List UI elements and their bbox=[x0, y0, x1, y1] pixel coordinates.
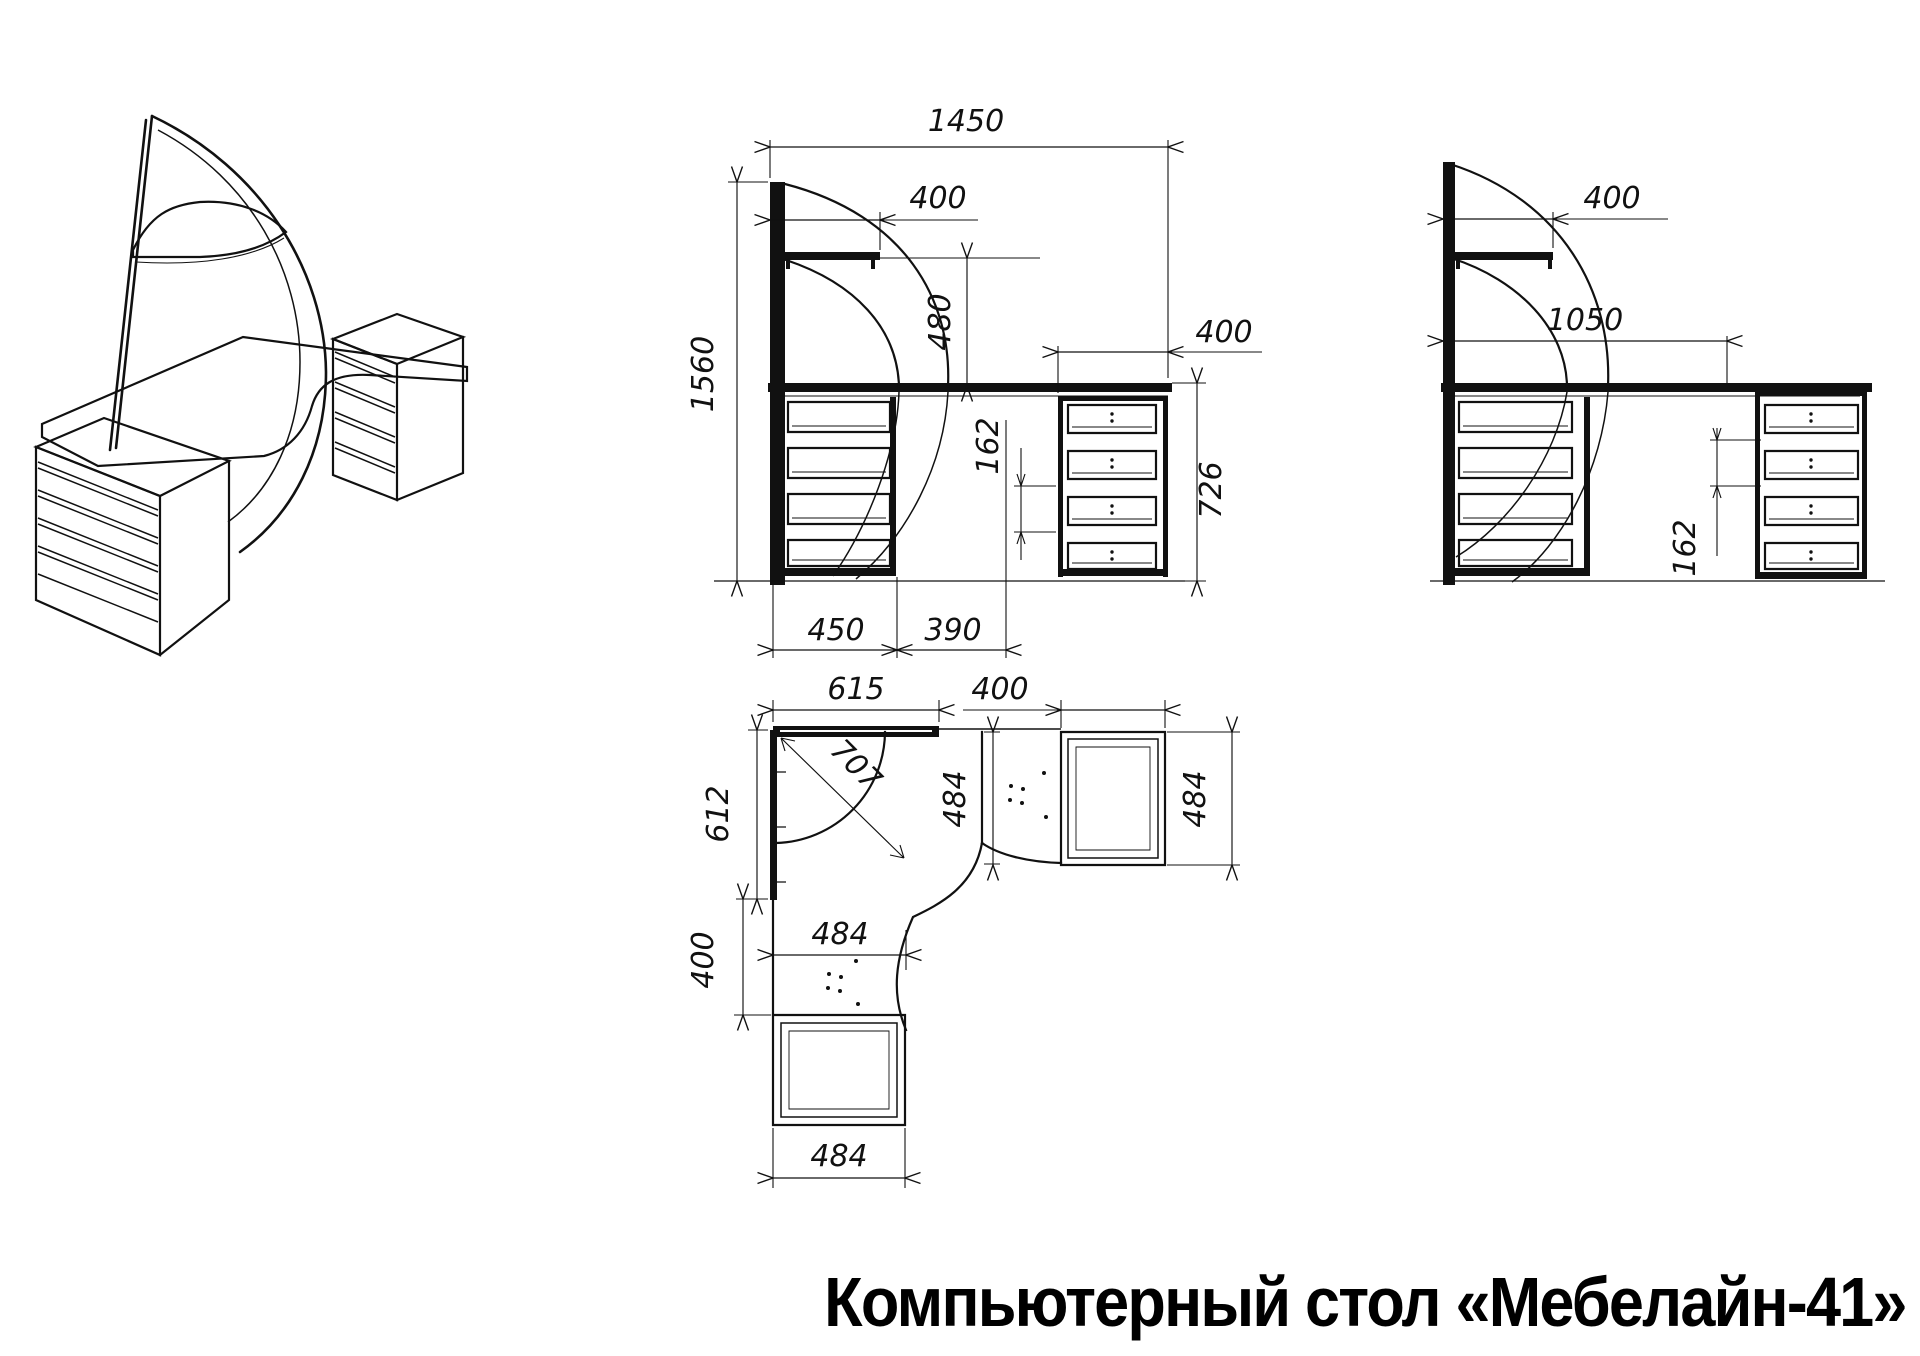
right-pedestal-drawer-bands bbox=[335, 352, 395, 473]
drawer-handle-dot bbox=[1110, 412, 1113, 415]
plan-hole-dot bbox=[826, 986, 830, 990]
plan-wing-bottom-edge bbox=[982, 843, 1061, 863]
plan-hole-dot bbox=[854, 959, 858, 963]
plan-hole-dot bbox=[856, 1002, 860, 1006]
drawer-handle-dot bbox=[1110, 458, 1113, 461]
plan-right-unit-outer bbox=[1061, 732, 1165, 865]
left-pedestal-drawer-bands bbox=[38, 462, 158, 622]
side-solid-panels bbox=[1441, 162, 1872, 585]
drawer-handle-dot bbox=[1110, 511, 1113, 514]
dim-text-484-right: 484 bbox=[1178, 770, 1213, 827]
blueprint-page: 1450 400 480 1560 400 162 726 450 390 40… bbox=[0, 0, 1920, 1356]
plan-view: 615 400 612 707 484 484 400 484 484 bbox=[686, 672, 1240, 1188]
dim-text-450: 450 bbox=[807, 613, 864, 648]
front-view: 1450 400 480 1560 400 162 726 450 390 bbox=[686, 104, 1262, 658]
drawer-handle-dot bbox=[1809, 419, 1812, 422]
desktop-outline bbox=[42, 337, 467, 466]
plan-right-unit-inner bbox=[1068, 739, 1158, 858]
dim-text-480: 480 bbox=[923, 293, 958, 350]
isometric-view bbox=[36, 116, 467, 655]
plan-hole-dot bbox=[839, 975, 843, 979]
drawer-handle-dot bbox=[1809, 557, 1812, 560]
plan-hole-dot bbox=[1020, 801, 1024, 805]
drawer-handle-dot bbox=[1110, 504, 1113, 507]
dim-text-612: 612 bbox=[701, 785, 736, 842]
drawer-handle-dot bbox=[1809, 412, 1812, 415]
drawer-handle-dot bbox=[1809, 550, 1812, 553]
plan-bottom-unit-outer bbox=[773, 1015, 905, 1125]
plan-right-unit-core bbox=[1076, 747, 1150, 850]
drawer-handle-dot bbox=[1809, 504, 1812, 507]
dim-text-484-left: 484 bbox=[938, 770, 973, 827]
dim-text-484-mid: 484 bbox=[811, 917, 868, 952]
drawer-handle-dot bbox=[1110, 465, 1113, 468]
corner-shelf-edge bbox=[136, 238, 284, 263]
dim-text-484-bottom: 484 bbox=[810, 1139, 867, 1174]
plan-hole-dot bbox=[827, 972, 831, 976]
plan-hole-dot bbox=[1009, 784, 1013, 788]
right-pedestal-front bbox=[333, 339, 397, 500]
dim-text-1050: 1050 bbox=[1547, 303, 1623, 338]
dim-text-390: 390 bbox=[924, 613, 981, 648]
drawing-canvas: 1450 400 480 1560 400 162 726 450 390 40… bbox=[0, 0, 1920, 1356]
drawer-handle-dot bbox=[1110, 550, 1113, 553]
plan-hole-dot bbox=[1044, 815, 1048, 819]
dim-text-1450: 1450 bbox=[928, 104, 1004, 139]
front-extension-lines bbox=[728, 140, 1262, 658]
plan-user-cutout-arc bbox=[897, 843, 982, 1030]
dim-text-726: 726 bbox=[1194, 461, 1229, 518]
dim-text-1560: 1560 bbox=[686, 336, 721, 412]
plan-hole-dot bbox=[1008, 798, 1012, 802]
dim-text-400-pedestal: 400 bbox=[1195, 315, 1252, 350]
dim-text-162-side: 162 bbox=[1668, 519, 1703, 576]
right-pedestal-top bbox=[333, 314, 463, 364]
plan-hole-dot bbox=[1021, 787, 1025, 791]
dim-text-615: 615 bbox=[827, 672, 884, 707]
left-pedestal-front bbox=[36, 447, 160, 655]
plan-hole-dot bbox=[1042, 771, 1046, 775]
drawer-handle-dot bbox=[1809, 465, 1812, 468]
dim-text-400-shelf: 400 bbox=[909, 181, 966, 216]
dim-text-400-side: 400 bbox=[1583, 181, 1640, 216]
plan-bottom-unit-inner bbox=[781, 1023, 897, 1117]
drawer-handle-dot bbox=[1110, 419, 1113, 422]
dim-text-400-unit: 400 bbox=[971, 672, 1028, 707]
drawer-handle-dot bbox=[1809, 511, 1812, 514]
drawer-handle-dot bbox=[1110, 557, 1113, 560]
plan-hole-dot bbox=[838, 989, 842, 993]
dim-text-162-front: 162 bbox=[971, 417, 1006, 474]
left-pedestal-top bbox=[36, 418, 229, 496]
drawing-title: Компьютерный стол «Мебелайн-41» bbox=[824, 1262, 1906, 1342]
sail-panel-left-edge bbox=[110, 116, 152, 450]
plan-panel-ticks bbox=[777, 772, 786, 882]
drawer-handle-dot bbox=[1809, 458, 1812, 461]
dim-text-400-gap: 400 bbox=[686, 931, 721, 988]
side-view: 400 1050 162 bbox=[1430, 162, 1885, 585]
plan-bottom-unit-core bbox=[789, 1031, 889, 1109]
